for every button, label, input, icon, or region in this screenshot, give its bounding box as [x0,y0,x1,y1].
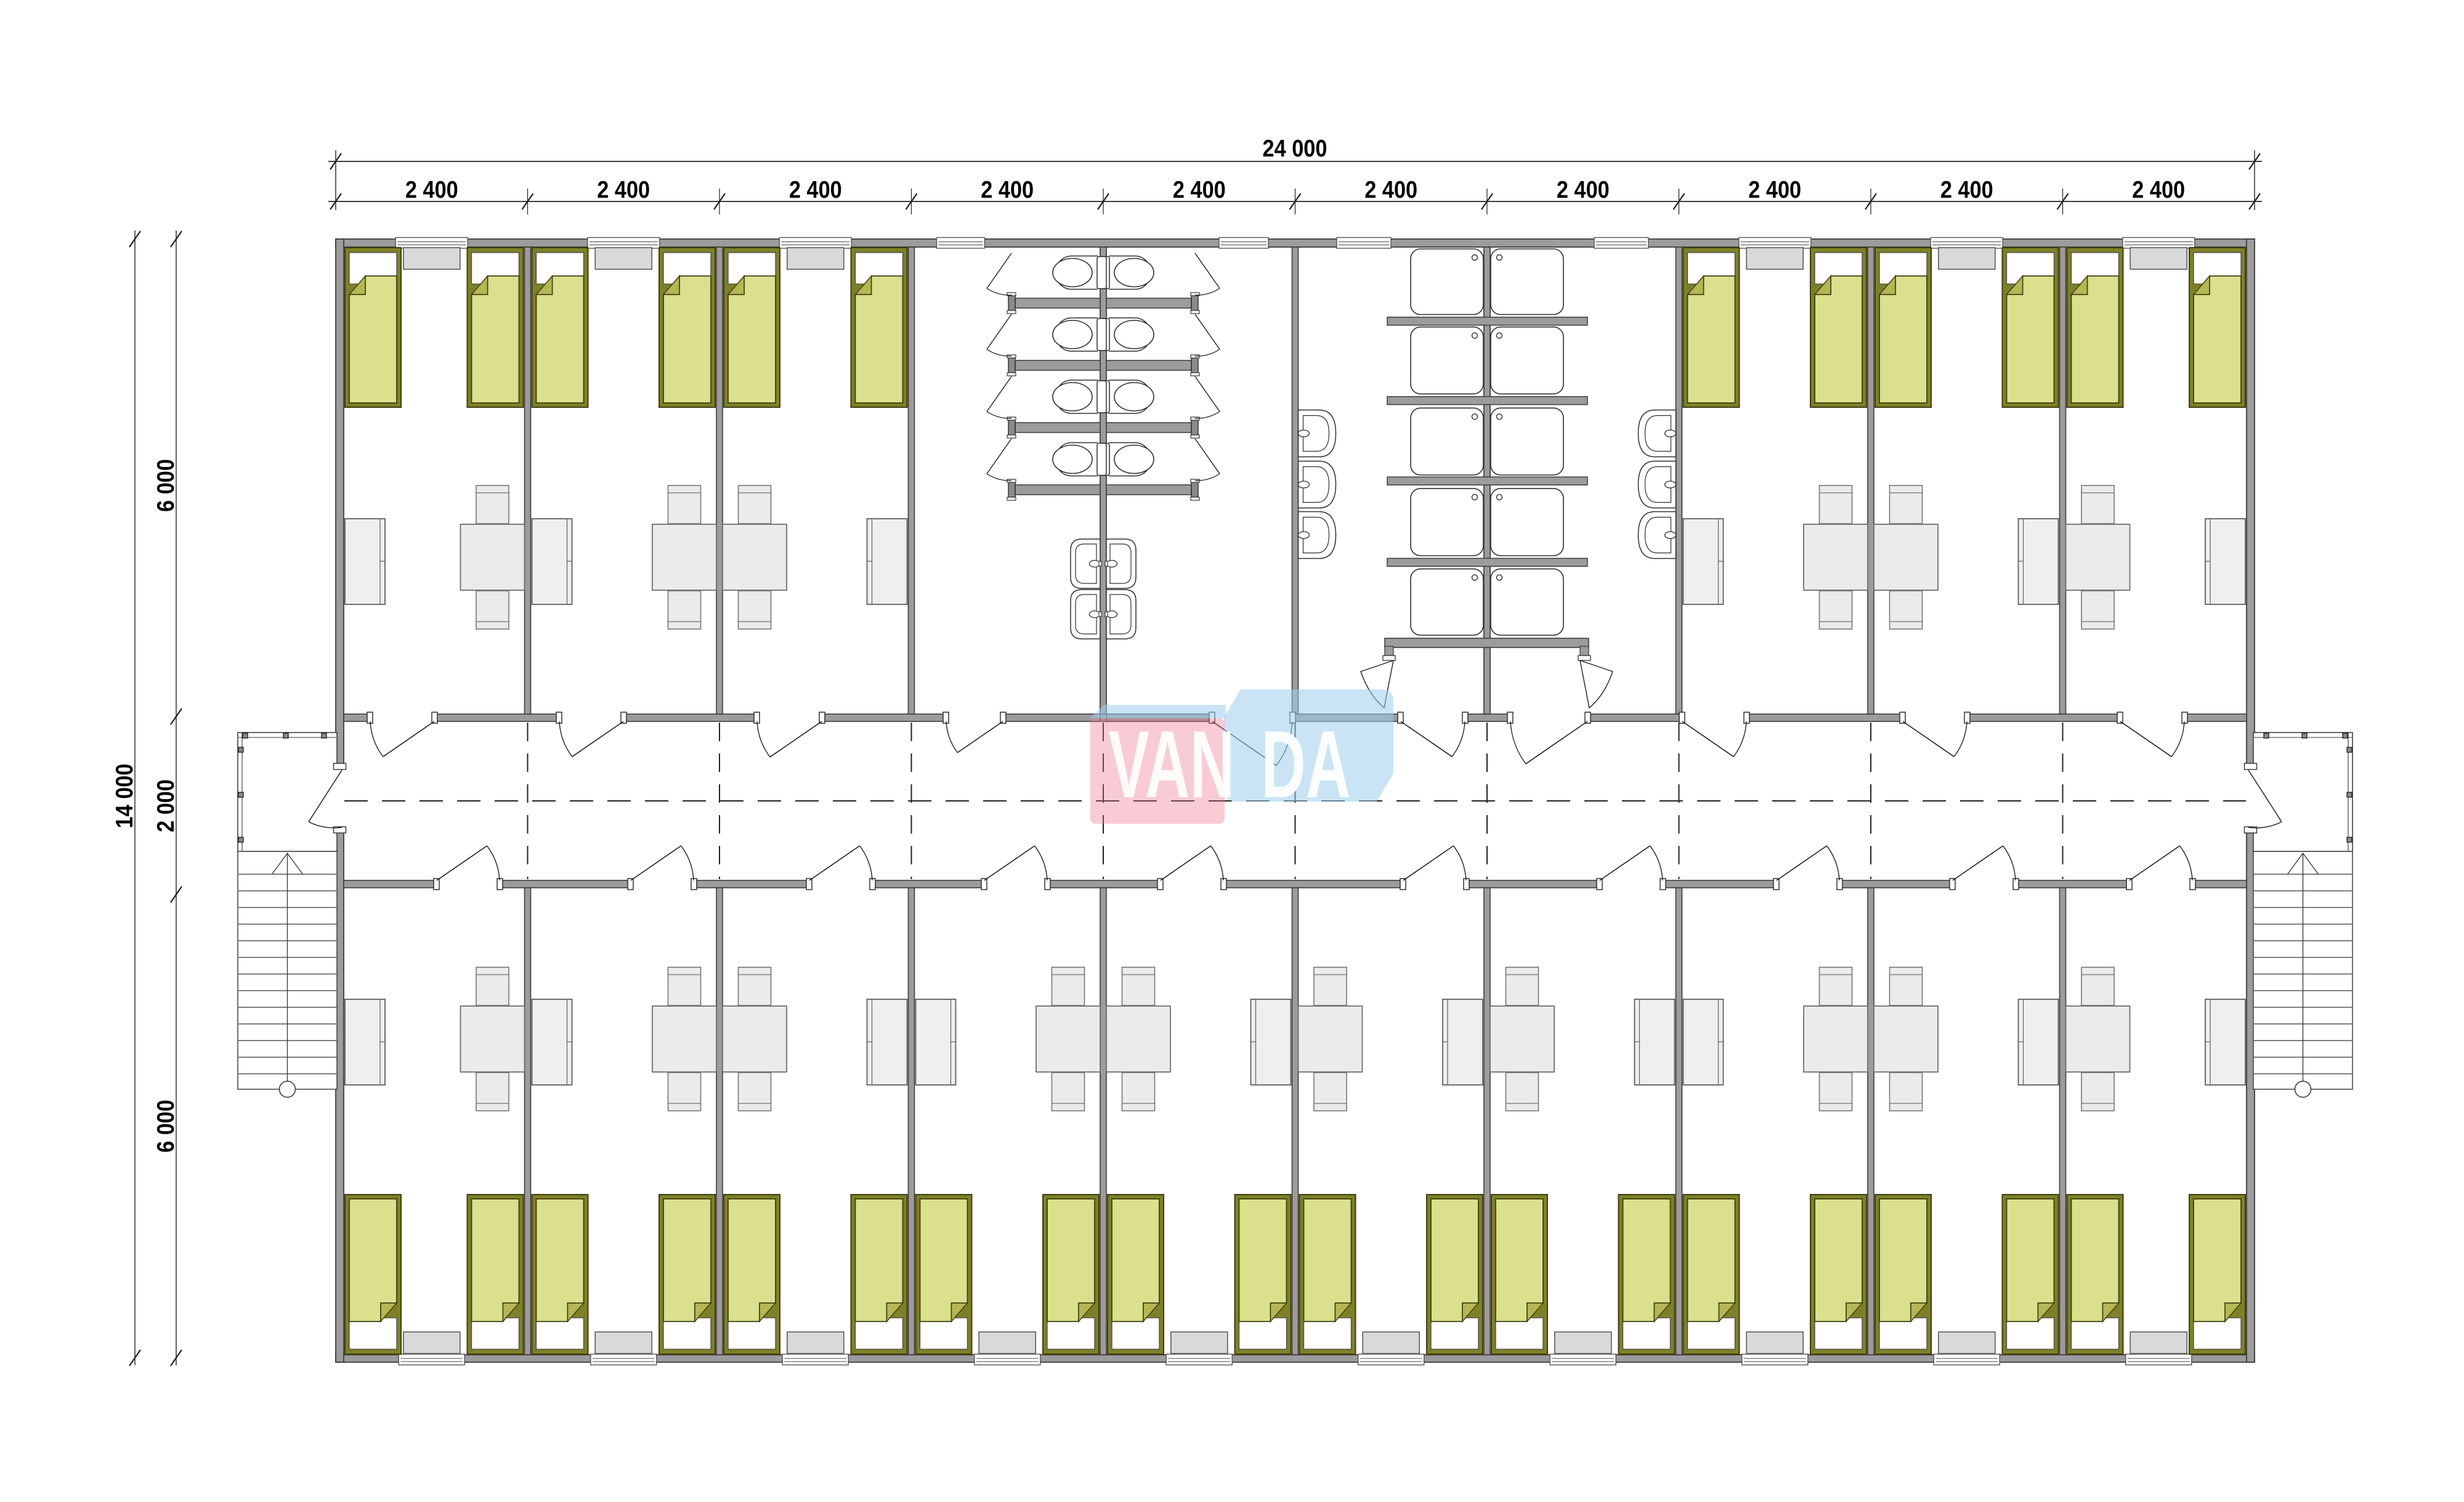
svg-text:6 000: 6 000 [152,459,179,512]
svg-text:2 400: 2 400 [981,176,1034,203]
svg-text:2 400: 2 400 [1364,176,1417,203]
svg-text:VAN: VAN [1108,711,1234,818]
svg-text:2 400: 2 400 [597,176,650,203]
svg-text:6 000: 6 000 [152,1100,179,1153]
svg-text:24 000: 24 000 [1263,135,1327,162]
svg-text:2 000: 2 000 [152,779,179,832]
svg-text:2 400: 2 400 [1748,176,1801,203]
svg-text:14 000: 14 000 [111,764,138,829]
svg-text:2 400: 2 400 [1940,176,1993,203]
svg-text:2 400: 2 400 [1557,176,1610,203]
svg-text:2 400: 2 400 [1173,176,1226,203]
svg-text:2 400: 2 400 [405,176,458,203]
svg-text:2 400: 2 400 [789,176,842,203]
svg-text:2 400: 2 400 [2132,176,2185,203]
svg-text:DA: DA [1261,711,1351,818]
